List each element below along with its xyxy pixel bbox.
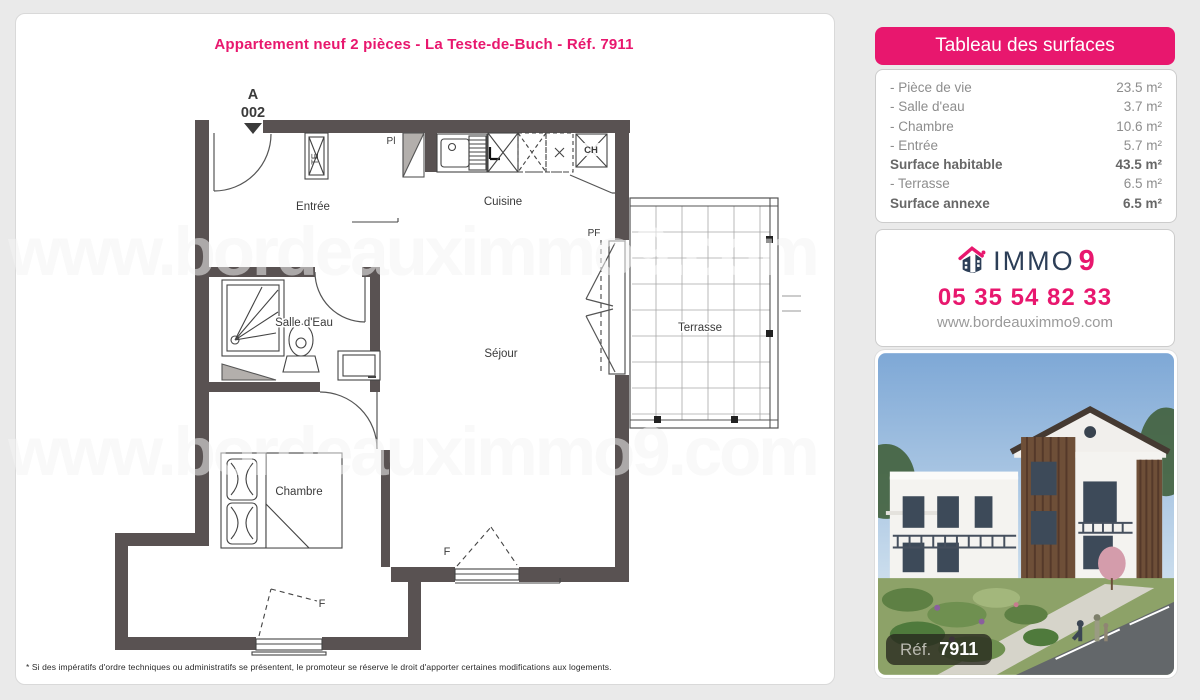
unit-letter: A: [248, 87, 259, 103]
surface-label: - Salle d'eau: [890, 97, 965, 116]
label-pf: PF: [588, 228, 601, 239]
surface-label: - Terrasse: [890, 174, 950, 193]
surface-row: - Terrasse 6.5 m²: [890, 174, 1162, 193]
footnote: * Si des impératifs d'ordre techniques o…: [26, 662, 612, 672]
room-label-chambre: Chambre: [275, 486, 322, 498]
surface-value: 10.6 m²: [1116, 117, 1162, 136]
surface-label: - Chambre: [890, 117, 954, 136]
neighbor-lines: [782, 296, 801, 311]
agency-phone: 05 35 54 82 33: [876, 284, 1174, 312]
brand-immo: IMMO: [993, 246, 1075, 277]
surface-row: - Chambre 10.6 m²: [890, 117, 1162, 136]
label-window-f1: F: [319, 598, 326, 610]
surface-value: 5.7 m²: [1124, 136, 1162, 155]
surface-value: 6.5 m²: [1124, 174, 1162, 193]
room-label-sejour: Séjour: [484, 348, 517, 360]
building-photo: Réf. 7911: [878, 353, 1174, 675]
surface-value: 23.5 m²: [1116, 78, 1162, 97]
surface-label: - Pièce de vie: [890, 78, 972, 97]
surface-label: Surface habitable: [890, 155, 1003, 174]
bathroom-fixtures: [222, 280, 380, 380]
label-ch: CH: [584, 145, 598, 156]
unit-marker: A 002: [241, 87, 265, 134]
surface-row-total-habitable: Surface habitable 43.5 m²: [890, 155, 1162, 174]
terrasse-deck: [630, 198, 778, 428]
brand-9: 9: [1079, 245, 1095, 278]
porte-fenetre: [586, 240, 625, 375]
room-label-entree: Entrée: [296, 201, 330, 213]
room-label-salle-eau: Salle d'Eau: [275, 317, 333, 329]
ref-label: Réf.: [900, 640, 931, 660]
bed: [221, 453, 342, 548]
unit-arrow-icon: [244, 123, 262, 134]
kitchen-fixtures: [305, 133, 607, 222]
surface-value: 6.5 m²: [1123, 194, 1162, 213]
surfaces-table: - Pièce de vie 23.5 m² - Salle d'eau 3.7…: [875, 69, 1177, 223]
surface-label: - Entrée: [890, 136, 938, 155]
walls: [115, 120, 630, 650]
agency-contact-card: IMMO9 05 35 54 82 33 www.bordeauximmo9.c…: [875, 229, 1175, 347]
label-te: TE: [310, 153, 320, 165]
surface-row: - Salle d'eau 3.7 m²: [890, 97, 1162, 116]
photo-ref-badge: Réf. 7911: [886, 634, 992, 665]
agency-website: www.bordeauximmo9.com: [876, 314, 1174, 331]
house-logo-icon: [955, 244, 989, 278]
surface-row: - Entrée 5.7 m²: [890, 136, 1162, 155]
surfaces-header: Tableau des surfaces: [875, 27, 1175, 65]
surface-value: 3.7 m²: [1124, 97, 1162, 116]
building-render: [878, 353, 1174, 675]
label-pl: Pl: [387, 136, 396, 147]
unit-number: 002: [241, 105, 265, 121]
surface-row-total-annexe: Surface annexe 6.5 m²: [890, 194, 1162, 213]
agency-logo: IMMO9: [876, 244, 1174, 278]
surface-label: Surface annexe: [890, 194, 990, 213]
ref-value: 7911: [939, 639, 978, 660]
building-photo-card: Réf. 7911: [875, 350, 1177, 678]
room-label-terrasse: Terrasse: [678, 322, 722, 334]
window-f1: [252, 589, 326, 655]
surface-value: 43.5 m²: [1115, 155, 1162, 174]
room-label-cuisine: Cuisine: [484, 196, 522, 208]
surface-row: - Pièce de vie 23.5 m²: [890, 78, 1162, 97]
label-window-f2: F: [444, 546, 451, 558]
